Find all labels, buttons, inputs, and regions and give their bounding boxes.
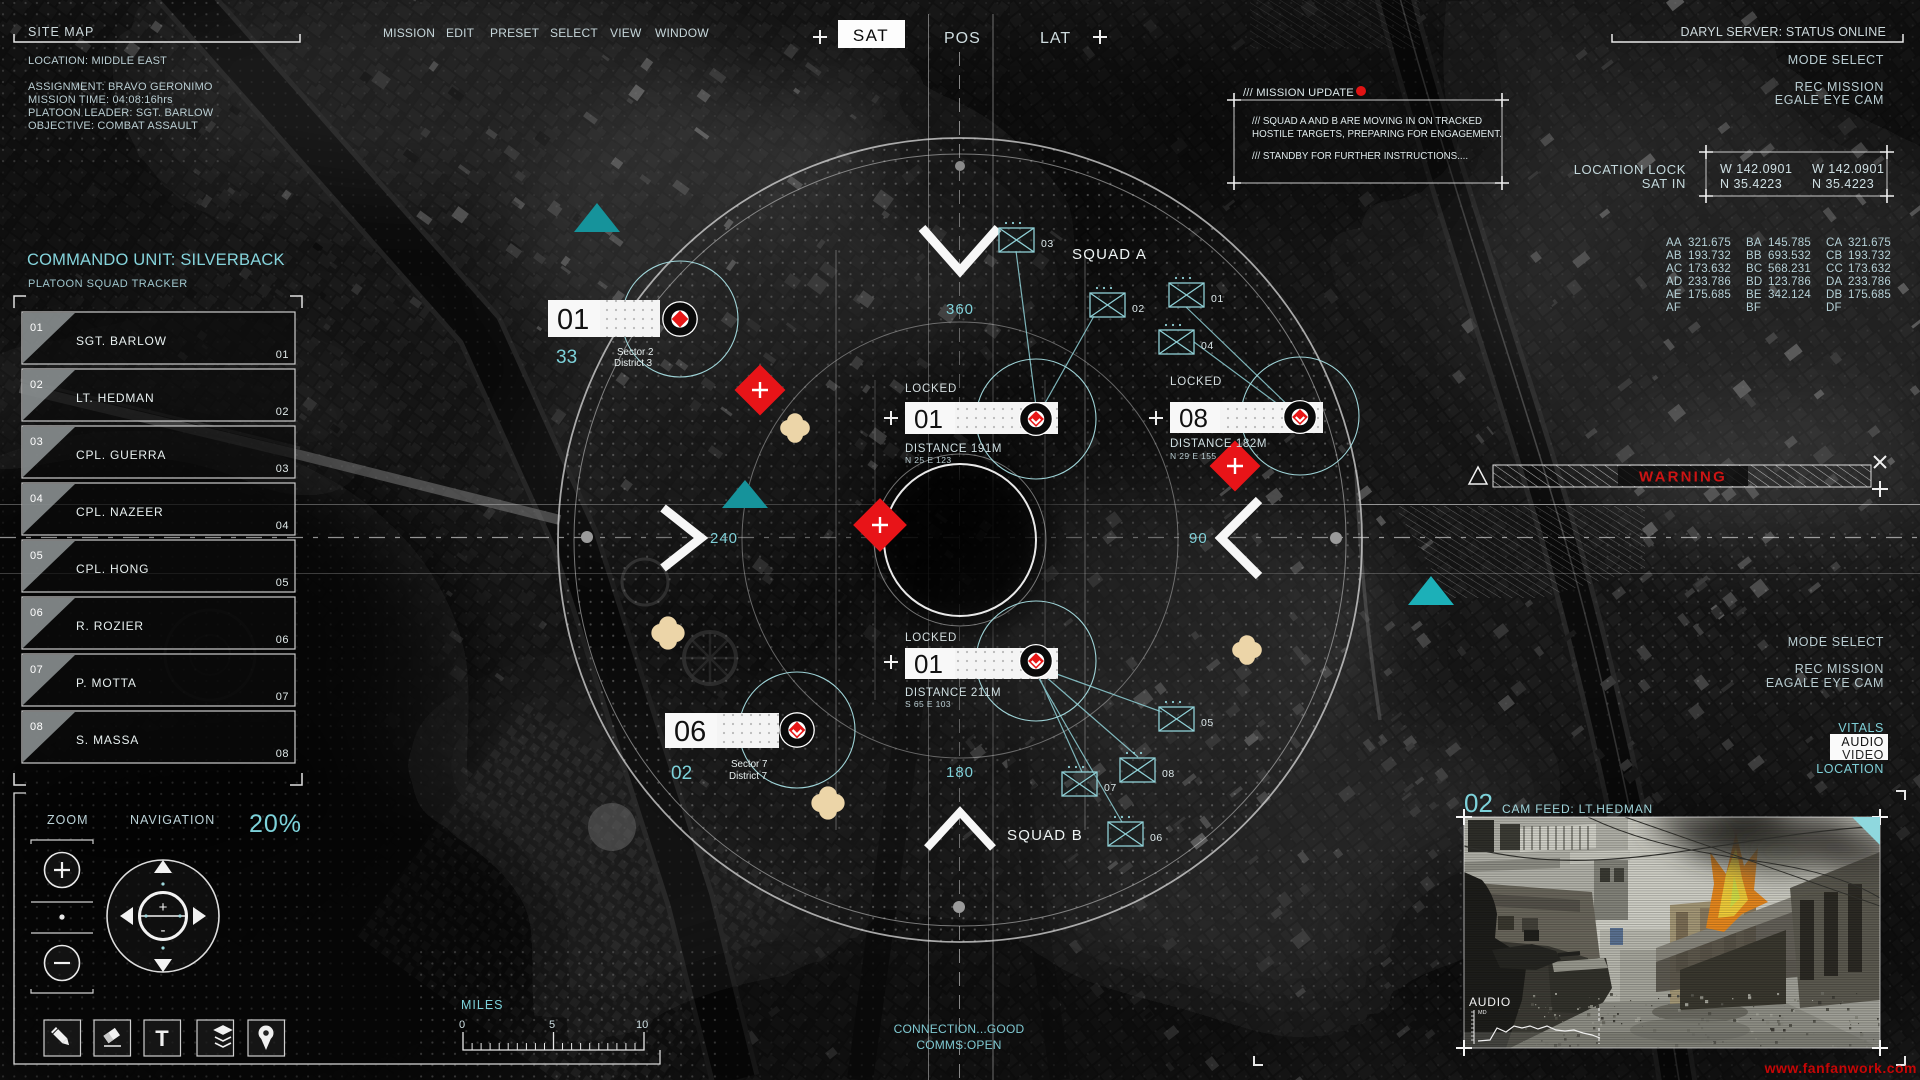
svg-text:01: 01: [1211, 293, 1224, 305]
svg-text:HOSTILE TARGETS, PREPARING FOR: HOSTILE TARGETS, PREPARING FOR ENGAGEMEN…: [1252, 129, 1502, 140]
svg-text:LOCATION: MIDDLE EAST: LOCATION: MIDDLE EAST: [28, 55, 167, 67]
svg-text:LOCKED: LOCKED: [1170, 376, 1222, 388]
svg-text:01: 01: [276, 349, 289, 361]
svg-text:AE: AE: [1666, 289, 1682, 301]
svg-text:175.685: 175.685: [1848, 289, 1891, 301]
svg-text:POS: POS: [944, 30, 981, 47]
svg-text:173.632: 173.632: [1688, 263, 1731, 275]
svg-text:CC: CC: [1826, 263, 1843, 275]
svg-text:175.685: 175.685: [1688, 289, 1731, 301]
svg-text:CONNECTION...GOOD: CONNECTION...GOOD: [894, 1022, 1025, 1036]
svg-text:05: 05: [1201, 717, 1214, 729]
svg-text:CPL. HONG: CPL. HONG: [76, 562, 149, 576]
svg-text:02: 02: [671, 763, 692, 784]
svg-text:342.124: 342.124: [1768, 289, 1811, 301]
svg-text:DB: DB: [1826, 289, 1843, 301]
svg-text:+: +: [159, 899, 168, 916]
svg-text:ZOOM: ZOOM: [47, 813, 89, 827]
svg-text:www.fanfanwork.com: www.fanfanwork.com: [1764, 1060, 1917, 1076]
svg-text:01: 01: [557, 304, 589, 336]
svg-text:08: 08: [1162, 768, 1175, 780]
svg-text:BC: BC: [1746, 263, 1762, 275]
svg-text:10: 10: [636, 1019, 648, 1031]
svg-text:04: 04: [1201, 340, 1214, 352]
svg-text:VIDEO: VIDEO: [1842, 748, 1884, 762]
svg-text:33: 33: [556, 347, 577, 368]
svg-text:90: 90: [1189, 530, 1208, 547]
svg-text:NAVIGATION: NAVIGATION: [130, 813, 215, 827]
svg-text:LOCATION LOCK: LOCATION LOCK: [1574, 162, 1686, 177]
svg-text:EAGALE EYE CAM: EAGALE EYE CAM: [1766, 676, 1884, 690]
svg-text:04: 04: [276, 520, 289, 532]
svg-text:S 65 E 103: S 65 E 103: [905, 699, 951, 709]
svg-text:SQUAD A: SQUAD A: [1072, 246, 1147, 263]
svg-text:01: 01: [914, 404, 943, 434]
svg-text:193.732: 193.732: [1848, 250, 1891, 262]
svg-text:N 29 E 155: N 29 E 155: [1170, 451, 1217, 461]
svg-text:123.786: 123.786: [1768, 276, 1811, 288]
svg-text:VIEW: VIEW: [610, 26, 642, 40]
svg-text:321.675: 321.675: [1688, 237, 1731, 249]
svg-text:VITALS: VITALS: [1838, 721, 1884, 735]
svg-text:LAT: LAT: [1040, 30, 1071, 47]
svg-text:173.632: 173.632: [1848, 263, 1891, 275]
svg-text:5: 5: [549, 1019, 555, 1031]
svg-text:MODE SELECT: MODE SELECT: [1788, 635, 1884, 649]
svg-text:CAM FEED: LT.HEDMAN: CAM FEED: LT.HEDMAN: [1502, 802, 1653, 816]
svg-text:DISTANCE 182M: DISTANCE 182M: [1170, 438, 1267, 450]
svg-text:MISSION: MISSION: [383, 26, 435, 40]
svg-text:COMMS:OPEN: COMMS:OPEN: [916, 1038, 1001, 1052]
svg-text:03: 03: [1041, 238, 1054, 250]
svg-text:P. MOTTA: P. MOTTA: [76, 676, 137, 690]
svg-text:AA: AA: [1666, 237, 1682, 249]
svg-text:AB: AB: [1666, 250, 1682, 262]
svg-text:-: -: [161, 922, 166, 939]
svg-text:EDIT: EDIT: [446, 26, 475, 40]
svg-text:321.675: 321.675: [1848, 237, 1891, 249]
svg-text:MILES: MILES: [461, 998, 504, 1012]
svg-text:08: 08: [1179, 403, 1208, 433]
svg-text:S. MASSA: S. MASSA: [76, 733, 139, 747]
svg-text:BA: BA: [1746, 237, 1762, 249]
svg-text:DARYL SERVER: STATUS ONLINE: DARYL SERVER: STATUS ONLINE: [1681, 25, 1886, 39]
svg-text:PLATOON LEADER: SGT. BARLOW: PLATOON LEADER: SGT. BARLOW: [28, 107, 214, 119]
svg-text:SQUAD B: SQUAD B: [1007, 827, 1083, 844]
svg-text:SGT. BARLOW: SGT. BARLOW: [76, 334, 167, 348]
svg-text:LOCKED: LOCKED: [905, 632, 957, 644]
svg-text:CPL. GUERRA: CPL. GUERRA: [76, 448, 166, 462]
svg-text:PLATOON SQUAD TRACKER: PLATOON SQUAD TRACKER: [28, 278, 188, 290]
svg-text:N 25 E 123: N 25 E 123: [905, 455, 952, 465]
svg-text:06: 06: [30, 607, 43, 619]
svg-text:MODE SELECT: MODE SELECT: [1788, 53, 1884, 67]
svg-text:Sector 7: Sector 7: [731, 759, 768, 770]
svg-text:BE: BE: [1746, 289, 1762, 301]
svg-text:360: 360: [946, 301, 974, 318]
svg-text:03: 03: [276, 463, 289, 475]
svg-text:DISTANCE 191M: DISTANCE 191M: [905, 443, 1002, 455]
svg-text:AF: AF: [1666, 302, 1681, 314]
svg-text:CPL. NAZEER: CPL. NAZEER: [76, 505, 164, 519]
svg-text:0: 0: [459, 1019, 465, 1031]
svg-text:233.786: 233.786: [1848, 276, 1891, 288]
svg-text:145.785: 145.785: [1768, 237, 1811, 249]
svg-text:EGALE EYE CAM: EGALE EYE CAM: [1775, 93, 1884, 107]
svg-text:W 142.0901: W 142.0901: [1720, 162, 1792, 176]
svg-text:ASSIGNMENT: BRAVO GERONIMO: ASSIGNMENT: BRAVO GERONIMO: [28, 81, 213, 93]
svg-text:01: 01: [914, 649, 943, 679]
svg-text:06: 06: [674, 716, 706, 748]
svg-text:LT. HEDMAN: LT. HEDMAN: [76, 391, 154, 405]
svg-text:SELECT: SELECT: [550, 26, 598, 40]
svg-text:WINDOW: WINDOW: [655, 26, 709, 40]
svg-text:AD: AD: [1666, 276, 1682, 288]
svg-text:N 35.4223: N 35.4223: [1720, 177, 1782, 191]
svg-text:DA: DA: [1826, 276, 1843, 288]
svg-text:180: 180: [946, 764, 974, 781]
svg-text:02: 02: [1132, 303, 1145, 315]
svg-text:/// SQUAD A AND B ARE MOVING I: /// SQUAD A AND B ARE MOVING IN ON TRACK…: [1252, 116, 1482, 127]
svg-text:AUDIO: AUDIO: [1841, 735, 1884, 749]
svg-text:District 7: District 7: [729, 771, 767, 782]
svg-text:BD: BD: [1746, 276, 1762, 288]
svg-text:/// MISSION UPDATE: /// MISSION UPDATE: [1243, 87, 1354, 99]
svg-text:REC MISSION: REC MISSION: [1795, 80, 1884, 94]
svg-text:06: 06: [1150, 832, 1163, 844]
svg-text:AUDIO: AUDIO: [1469, 995, 1511, 1009]
svg-text:LOCKED: LOCKED: [905, 383, 957, 395]
svg-text:01: 01: [30, 322, 43, 334]
svg-text:568.231: 568.231: [1768, 263, 1811, 275]
svg-text:BB: BB: [1746, 250, 1762, 262]
svg-text:DISTANCE 211M: DISTANCE 211M: [905, 687, 1001, 699]
svg-text:07: 07: [276, 691, 289, 703]
svg-text:MISSION TIME: 04:08:16hrs: MISSION TIME: 04:08:16hrs: [28, 94, 173, 106]
svg-text:SAT IN: SAT IN: [1642, 176, 1686, 191]
svg-text:District 3: District 3: [614, 358, 653, 369]
svg-text:02: 02: [30, 379, 43, 391]
svg-text:04: 04: [30, 493, 43, 505]
svg-text:07: 07: [30, 664, 43, 676]
svg-text:193.732: 193.732: [1688, 250, 1731, 262]
svg-text:05: 05: [276, 577, 289, 589]
svg-text:02: 02: [276, 406, 289, 418]
svg-text:R. ROZIER: R. ROZIER: [76, 619, 144, 633]
svg-text:MD: MD: [1478, 1010, 1487, 1016]
svg-text:08: 08: [30, 721, 43, 733]
svg-text:240: 240: [710, 530, 738, 547]
svg-text:OBJECTIVE: COMBAT ASSAULT: OBJECTIVE: COMBAT ASSAULT: [28, 120, 198, 132]
svg-text:CB: CB: [1826, 250, 1843, 262]
svg-text:05: 05: [30, 550, 43, 562]
svg-text:693.532: 693.532: [1768, 250, 1811, 262]
svg-text:/// STANDBY FOR FURTHER INSTRU: /// STANDBY FOR FURTHER INSTRUCTIONS....: [1252, 151, 1468, 162]
svg-text:WARNING: WARNING: [1639, 469, 1727, 486]
svg-text:02: 02: [1464, 788, 1493, 818]
svg-text:REC MISSION: REC MISSION: [1795, 662, 1884, 676]
svg-text:06: 06: [276, 634, 289, 646]
svg-text:08: 08: [276, 748, 289, 760]
svg-text:SAT: SAT: [853, 26, 889, 45]
svg-text:SITE MAP: SITE MAP: [28, 25, 94, 39]
svg-text:20%: 20%: [249, 810, 302, 838]
svg-text:CA: CA: [1826, 237, 1843, 249]
svg-text:T: T: [155, 1026, 169, 1051]
svg-text:PRESET: PRESET: [490, 26, 540, 40]
svg-text:07: 07: [1104, 782, 1117, 794]
svg-text:03: 03: [30, 436, 43, 448]
svg-text:AC: AC: [1666, 263, 1682, 275]
svg-text:DF: DF: [1826, 302, 1842, 314]
svg-text:Sector 2: Sector 2: [617, 347, 654, 358]
svg-text:LOCATION: LOCATION: [1816, 762, 1884, 776]
svg-text:W 142.0901: W 142.0901: [1812, 162, 1884, 176]
svg-text:COMMANDO UNIT: SILVERBACK: COMMANDO UNIT: SILVERBACK: [27, 251, 285, 269]
svg-text:N 35.4223: N 35.4223: [1812, 177, 1874, 191]
svg-text:233.786: 233.786: [1688, 276, 1731, 288]
svg-text:BF: BF: [1746, 302, 1761, 314]
